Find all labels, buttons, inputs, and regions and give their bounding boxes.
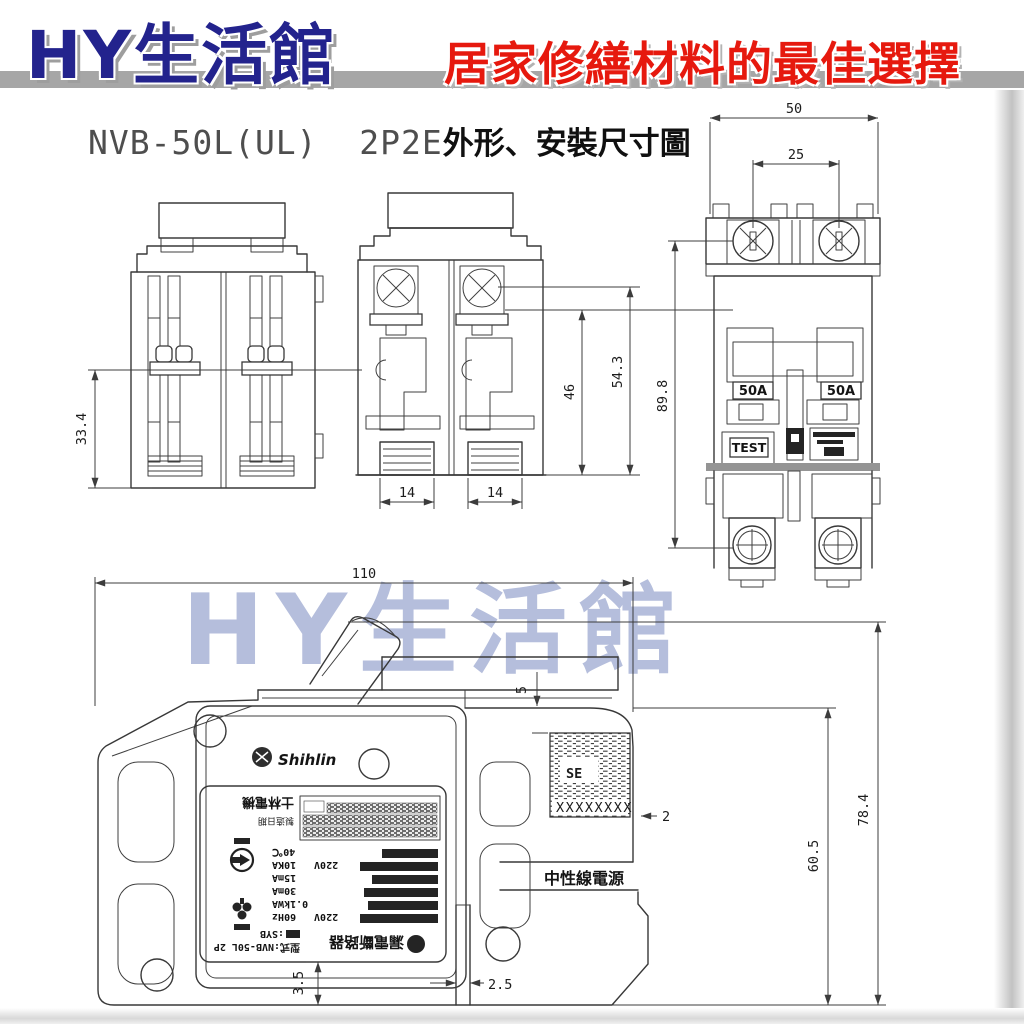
cert-arrow-circle-icon	[231, 838, 253, 871]
nameplate-frame: :SYB	[260, 928, 284, 939]
neutral-line-label: 中性線電源	[544, 869, 624, 888]
dim-top-gap: 5	[514, 686, 530, 694]
nameplate-breaking: 10KA	[272, 859, 296, 870]
nameplate-date-label: 製造日期	[258, 815, 294, 827]
nameplate-temp: 40℃	[272, 846, 295, 857]
dim-pole-pitch: 25	[788, 147, 804, 163]
dim-side-inner: 46	[562, 384, 578, 400]
dim-foot-right: 14	[487, 485, 503, 501]
dimension-drawing: 33.4 4	[0, 0, 1024, 1024]
mounted-view: 110 Shihlin	[95, 566, 886, 1005]
nameplate-freq: 60Hz	[272, 911, 296, 922]
nameplate-sens-hold: 15mA	[272, 872, 296, 883]
breaker-handle	[310, 617, 400, 704]
dim-depth-inner: 60.5	[806, 840, 822, 873]
nameplate-model: 型式:NVB-50L 2P	[214, 941, 300, 954]
se-sticker: SE XXXXXXXX	[550, 733, 633, 817]
shihlin-brand-text: Shihlin	[278, 751, 336, 769]
front-view: 50 25 50A 50A	[655, 101, 880, 587]
dim-front-width: 50	[786, 101, 802, 117]
shihlin-logo: Shihlin	[252, 747, 336, 769]
amp-rating-right: 50A	[827, 384, 855, 399]
nameplate-volt-sub: 220V	[314, 859, 338, 870]
dim-bottom-gap: 3.5	[291, 971, 307, 995]
dim-foot-left: 14	[399, 485, 415, 501]
nameplate-product: 漏電斷路器	[328, 933, 404, 951]
dim-label-edge: 2	[662, 809, 670, 825]
side-view: 46 54.3 14 14	[356, 193, 733, 509]
nameplate-power: 0.1kWA	[272, 898, 308, 909]
amp-rating-left: 50A	[739, 384, 767, 399]
se-serial-text: XXXXXXXX	[556, 800, 633, 816]
nameplate-maker: 士林電機	[242, 794, 294, 810]
dim-mounted-width: 110	[352, 566, 376, 582]
mini-label	[810, 428, 858, 460]
page-edge-bottom	[0, 1008, 1024, 1024]
dim-side-total: 54.3	[610, 356, 626, 389]
dim-front-height: 89.8	[655, 380, 671, 413]
nameplate-sens-rated: 30mA	[272, 885, 296, 896]
dim-slot-width: 2.5	[488, 977, 512, 993]
page-curl-right	[994, 90, 1024, 1024]
nameplate: 漏電斷路器 型式:NVB-50L 2P :SYB 220V 60Hz 0.1kW…	[214, 794, 440, 954]
se-mark-text: SE	[566, 766, 582, 782]
dim-depth-total: 78.4	[856, 794, 872, 827]
dim-rear-height: 33.4	[74, 413, 90, 446]
rear-view: 33.4	[74, 203, 362, 488]
test-button-label: TEST	[732, 440, 767, 455]
nameplate-volt-main: 220V	[314, 911, 338, 922]
cert-clover-icon	[233, 898, 252, 930]
